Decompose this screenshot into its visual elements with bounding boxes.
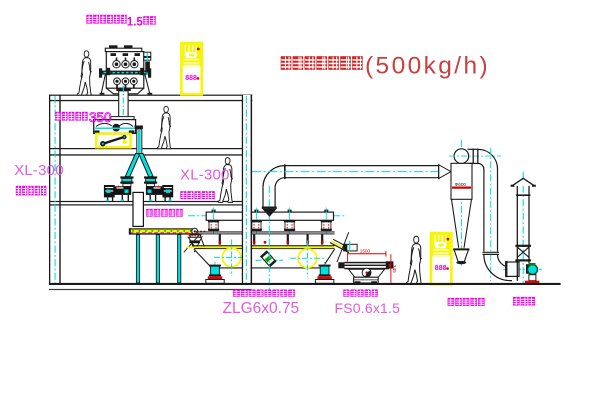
svg-text:ZLG6x0.75: ZLG6x0.75 [223,300,300,317]
svg-text:350: 350 [89,110,112,125]
svg-text:888: 888 [435,265,447,272]
svg-text:Φ600: Φ600 [455,182,467,187]
svg-text:XL-300: XL-300 [180,167,230,184]
svg-text:1.5: 1.5 [127,16,144,28]
svg-text:(500kg/h): (500kg/h) [365,53,490,80]
svg-text:XL-300: XL-300 [14,162,64,179]
svg-text:FS0.6x1.5: FS0.6x1.5 [335,300,401,316]
svg-text:345: 345 [391,265,397,273]
svg-text:888: 888 [185,75,197,82]
svg-text:1500: 1500 [360,249,371,254]
